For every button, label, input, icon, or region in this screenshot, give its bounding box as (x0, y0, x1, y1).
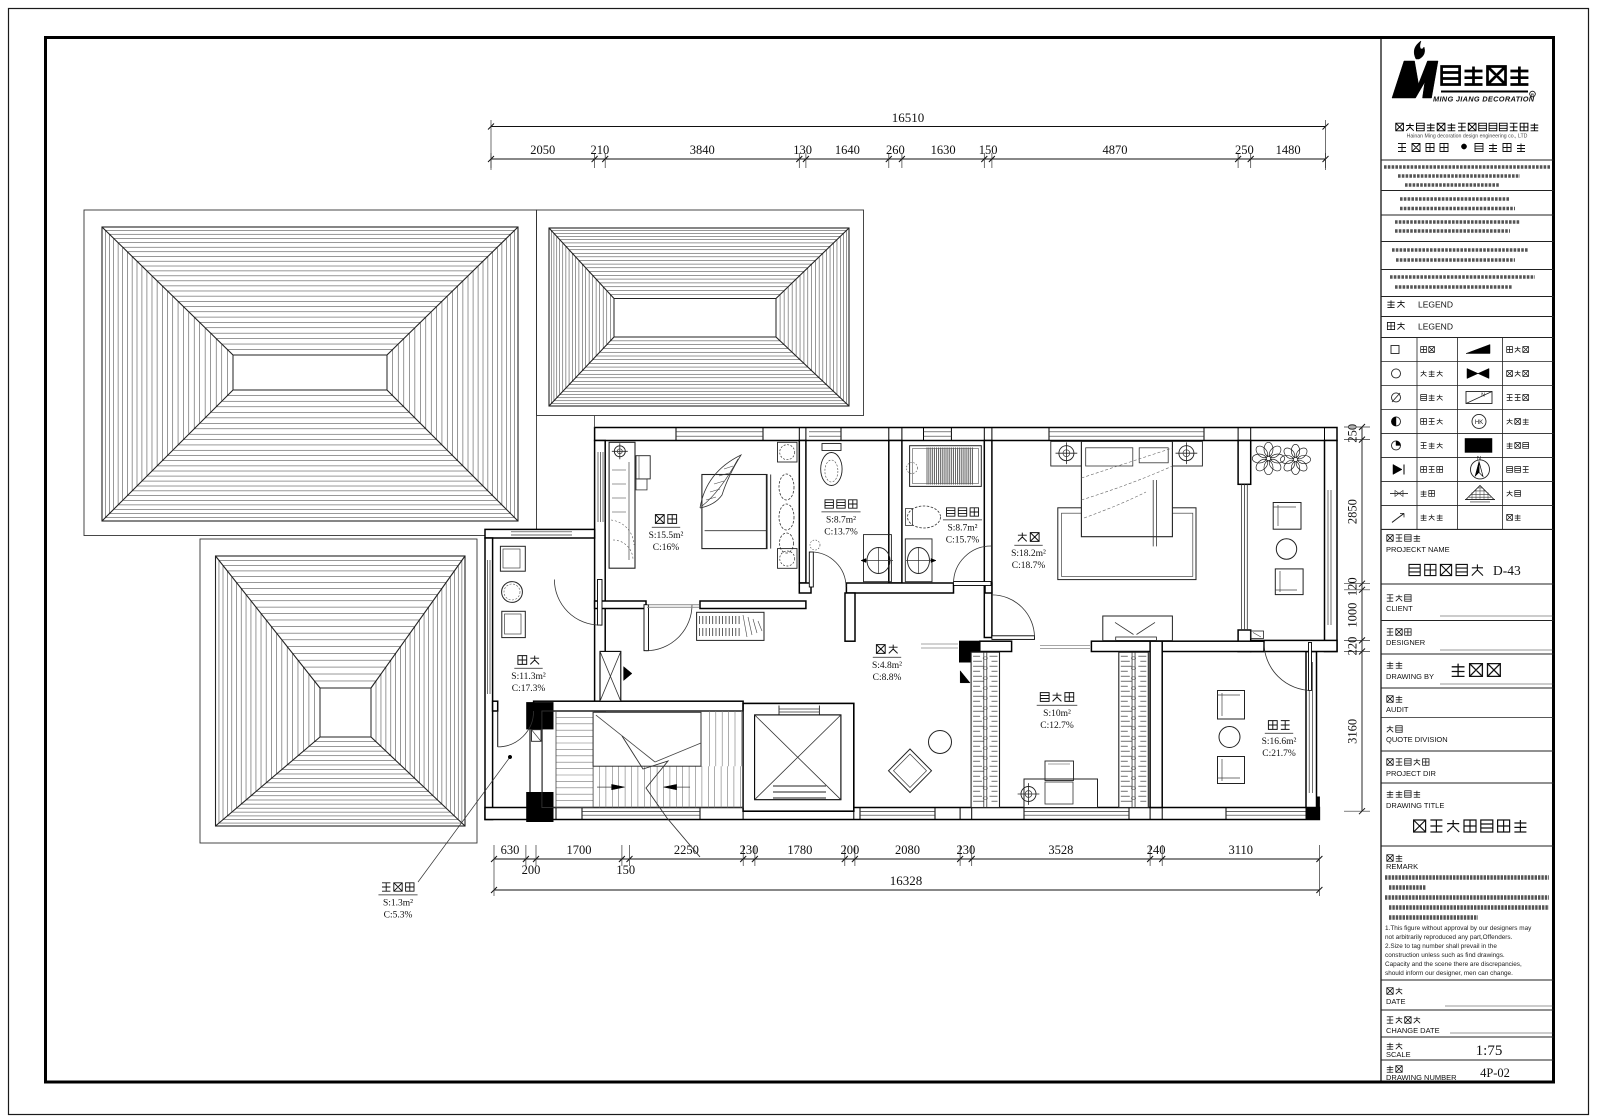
svg-text:250: 250 (1346, 424, 1360, 443)
svg-text:N: N (1481, 392, 1485, 398)
svg-text:1000: 1000 (1346, 603, 1360, 628)
svg-text:MING JIANG DECORATION: MING JIANG DECORATION (1433, 95, 1535, 104)
svg-text:150: 150 (616, 863, 635, 877)
svg-text:S:11.3m²: S:11.3m² (511, 672, 546, 682)
svg-text:C:17.3%: C:17.3% (512, 684, 546, 694)
svg-text:REMARK: REMARK (1386, 862, 1418, 871)
svg-text:not arbitrarily reproduced any: not arbitrarily reproduced any part,Offe… (1385, 934, 1513, 941)
svg-text:C:13.7%: C:13.7% (824, 527, 858, 537)
svg-text:DRAWING BY: DRAWING BY (1386, 672, 1434, 681)
svg-text:1480: 1480 (1276, 143, 1301, 157)
svg-text:2080: 2080 (895, 843, 920, 857)
svg-text:120: 120 (1346, 577, 1360, 596)
svg-text:260: 260 (886, 143, 905, 157)
svg-text:16510: 16510 (892, 110, 925, 125)
svg-text:PROJECT DIR: PROJECT DIR (1386, 769, 1436, 778)
svg-text:DRAWING NUMBER: DRAWING NUMBER (1386, 1073, 1457, 1082)
svg-text:1780: 1780 (787, 843, 812, 857)
svg-text:C:15.7%: C:15.7% (946, 535, 980, 545)
svg-text:C:16%: C:16% (653, 543, 679, 553)
svg-text:CLIENT: CLIENT (1386, 604, 1413, 613)
svg-text:210: 210 (591, 143, 610, 157)
svg-text:PROJECKT NAME: PROJECKT NAME (1386, 545, 1450, 554)
svg-text:LEGEND: LEGEND (1418, 322, 1453, 332)
svg-text:200: 200 (840, 843, 859, 857)
svg-text:220: 220 (1346, 637, 1360, 656)
svg-text:1640: 1640 (835, 143, 860, 157)
svg-text:S:15.5m²: S:15.5m² (649, 531, 684, 541)
svg-text:HK: HK (1475, 420, 1483, 426)
svg-text:C:5.3%: C:5.3% (384, 910, 413, 920)
svg-text:S:8.7m²: S:8.7m² (826, 515, 856, 525)
svg-text:C:18.7%: C:18.7% (1012, 561, 1046, 571)
svg-text:4870: 4870 (1103, 143, 1128, 157)
svg-text:S:10m²: S:10m² (1043, 709, 1071, 719)
svg-text:630: 630 (501, 843, 520, 857)
svg-text:130: 130 (793, 143, 812, 157)
svg-text:DATE: DATE (1386, 997, 1405, 1006)
svg-text:SCALE: SCALE (1386, 1050, 1411, 1059)
svg-text:3110: 3110 (1229, 843, 1254, 857)
svg-text:1:75: 1:75 (1476, 1043, 1503, 1059)
svg-text:C:12.7%: C:12.7% (1040, 721, 1074, 731)
svg-text:3160: 3160 (1346, 719, 1360, 744)
svg-text:230: 230 (957, 843, 976, 857)
svg-text:QUOTE DIVISION: QUOTE DIVISION (1386, 735, 1448, 744)
svg-text:1.This figure without approval: 1.This figure without approval by our de… (1385, 925, 1532, 932)
svg-text:Hainan Ming decoration design: Hainan Ming decoration design engineerin… (1407, 134, 1528, 140)
svg-text:1630: 1630 (931, 143, 956, 157)
svg-text:D-43: D-43 (1493, 563, 1521, 578)
svg-text:construction unless such as fi: construction unless such as find drawing… (1385, 952, 1505, 959)
svg-text:S:16.6m²: S:16.6m² (1262, 737, 1297, 747)
svg-text:should inform our designer, me: should inform our designer, men can chan… (1385, 970, 1513, 977)
svg-text:DRAWING TITLE: DRAWING TITLE (1386, 801, 1444, 810)
svg-text:CHANGE DATE: CHANGE DATE (1386, 1026, 1440, 1035)
svg-text:AUDIT: AUDIT (1386, 705, 1409, 714)
svg-text:16328: 16328 (890, 873, 923, 888)
svg-text:S:4.8m²: S:4.8m² (872, 661, 902, 671)
svg-text:1700: 1700 (566, 843, 591, 857)
svg-text:250: 250 (1235, 143, 1254, 157)
svg-text:2850: 2850 (1346, 499, 1360, 524)
svg-text:240: 240 (1147, 843, 1166, 857)
svg-text:2.Size to tag number shall pre: 2.Size to tag number shall prevail in th… (1385, 943, 1497, 950)
svg-text:S:1.3m²: S:1.3m² (383, 898, 413, 908)
svg-text:4P-02: 4P-02 (1480, 1066, 1510, 1080)
svg-text:230: 230 (740, 843, 759, 857)
svg-text:150: 150 (979, 143, 998, 157)
svg-text:200: 200 (522, 863, 541, 877)
svg-text:3840: 3840 (690, 143, 715, 157)
svg-text:C:21.7%: C:21.7% (1262, 749, 1296, 759)
svg-text:3528: 3528 (1048, 843, 1073, 857)
svg-text:C:8.8%: C:8.8% (873, 673, 902, 683)
svg-text:S:8.7m²: S:8.7m² (947, 523, 977, 533)
svg-text:DESIGNER: DESIGNER (1386, 638, 1426, 647)
svg-text:LEGEND: LEGEND (1418, 300, 1453, 310)
svg-text:2050: 2050 (530, 143, 555, 157)
svg-text:2250: 2250 (674, 843, 699, 857)
svg-text:S:18.2m²: S:18.2m² (1011, 549, 1046, 559)
svg-text:Capacity and the scene there a: Capacity and the scene there are discrep… (1385, 961, 1522, 968)
svg-text:N: N (1477, 456, 1481, 462)
